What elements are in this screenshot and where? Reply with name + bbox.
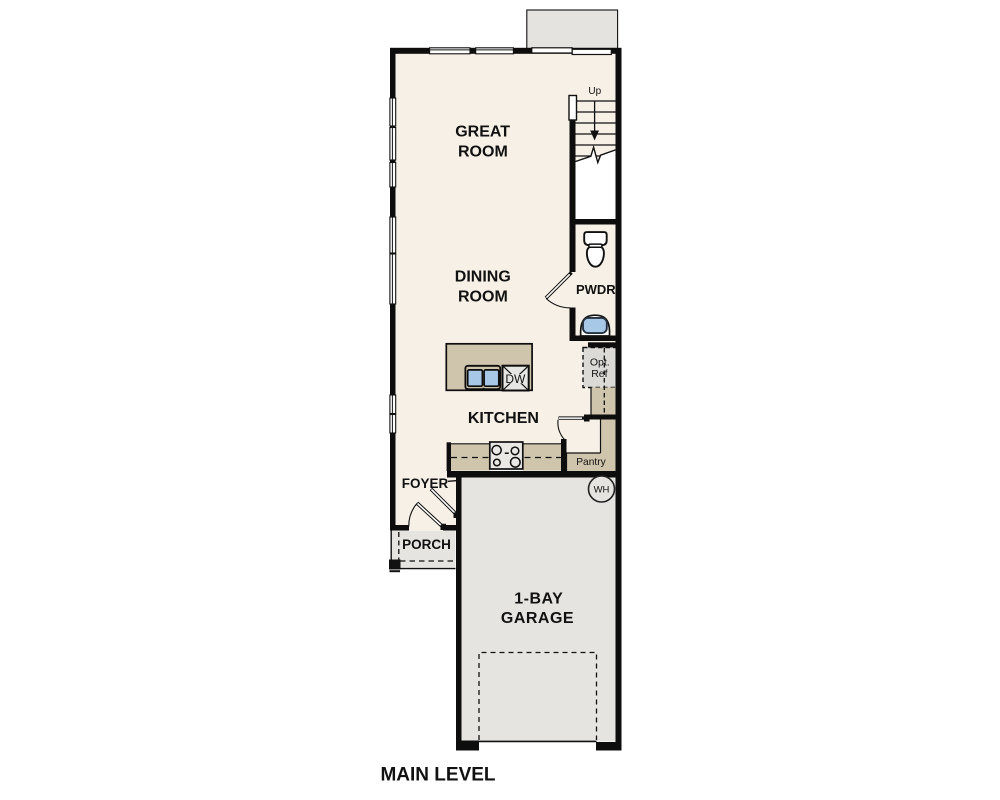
svg-text:ROOM: ROOM	[458, 289, 508, 306]
svg-text:Up: Up	[588, 86, 601, 97]
svg-text:DW: DW	[505, 372, 526, 386]
svg-text:FOYER: FOYER	[402, 476, 449, 491]
svg-text:ROOM: ROOM	[458, 143, 508, 160]
svg-text:MAIN LEVEL: MAIN LEVEL	[380, 765, 495, 786]
svg-text:KITCHEN: KITCHEN	[468, 410, 539, 427]
svg-text:1-BAY: 1-BAY	[514, 591, 563, 608]
svg-text:Pantry: Pantry	[576, 457, 606, 468]
svg-text:WH: WH	[594, 485, 610, 496]
svg-text:DINING: DINING	[455, 269, 511, 286]
svg-text:Ref: Ref	[591, 368, 607, 380]
svg-text:PORCH: PORCH	[402, 537, 451, 552]
svg-text:PWDR: PWDR	[576, 282, 616, 297]
svg-text:Opt.: Opt.	[590, 357, 610, 369]
svg-text:GARAGE: GARAGE	[501, 610, 574, 627]
svg-text:GREAT: GREAT	[455, 124, 510, 141]
